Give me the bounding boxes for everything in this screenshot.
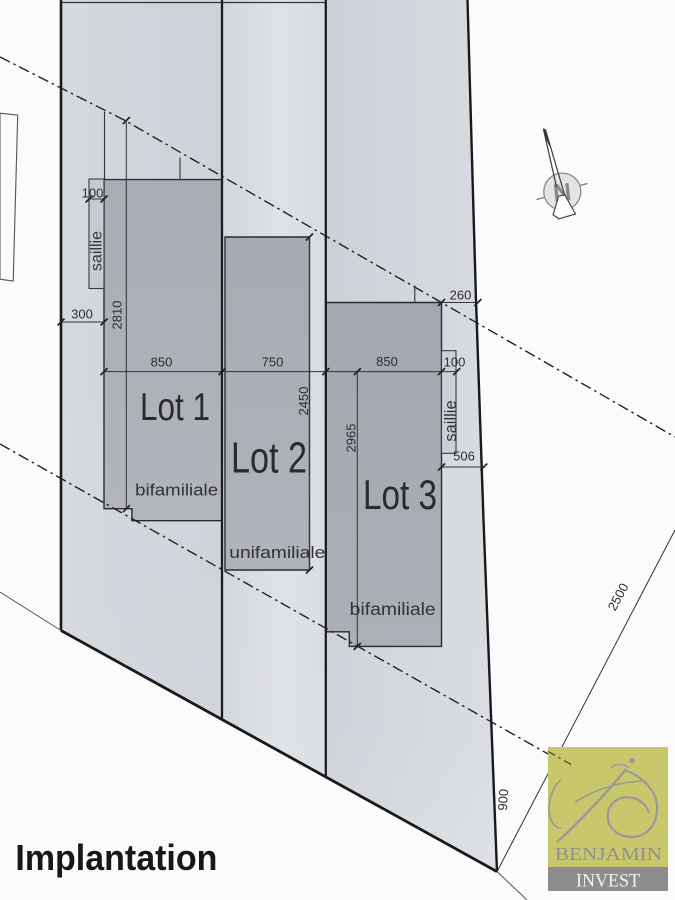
svg-text:850: 850 xyxy=(151,355,173,370)
svg-text:900: 900 xyxy=(495,788,511,811)
svg-text:bifamiliale: bifamiliale xyxy=(350,599,436,619)
svg-text:saillie: saillie xyxy=(442,400,460,441)
svg-text:2965: 2965 xyxy=(344,424,359,453)
svg-text:506: 506 xyxy=(453,449,475,464)
svg-text:850: 850 xyxy=(376,354,398,369)
svg-text:INVEST: INVEST xyxy=(576,871,640,892)
svg-text:300: 300 xyxy=(71,307,93,322)
svg-text:2450: 2450 xyxy=(296,387,311,416)
svg-text:Lot 2: Lot 2 xyxy=(231,434,307,483)
svg-text:750: 750 xyxy=(262,355,284,370)
svg-text:Lot 1: Lot 1 xyxy=(140,386,210,429)
svg-text:Implantation: Implantation xyxy=(15,837,217,878)
svg-text:100: 100 xyxy=(82,186,104,201)
svg-text:unifamiliale: unifamiliale xyxy=(229,543,325,562)
svg-text:260: 260 xyxy=(450,288,472,303)
svg-text:Lot 3: Lot 3 xyxy=(363,471,437,518)
svg-text:100: 100 xyxy=(444,355,466,370)
svg-text:2810: 2810 xyxy=(110,301,125,330)
svg-text:saillie: saillie xyxy=(89,231,106,271)
svg-text:BENJAMIN: BENJAMIN xyxy=(555,844,662,864)
svg-text:bifamiliale: bifamiliale xyxy=(135,482,218,500)
